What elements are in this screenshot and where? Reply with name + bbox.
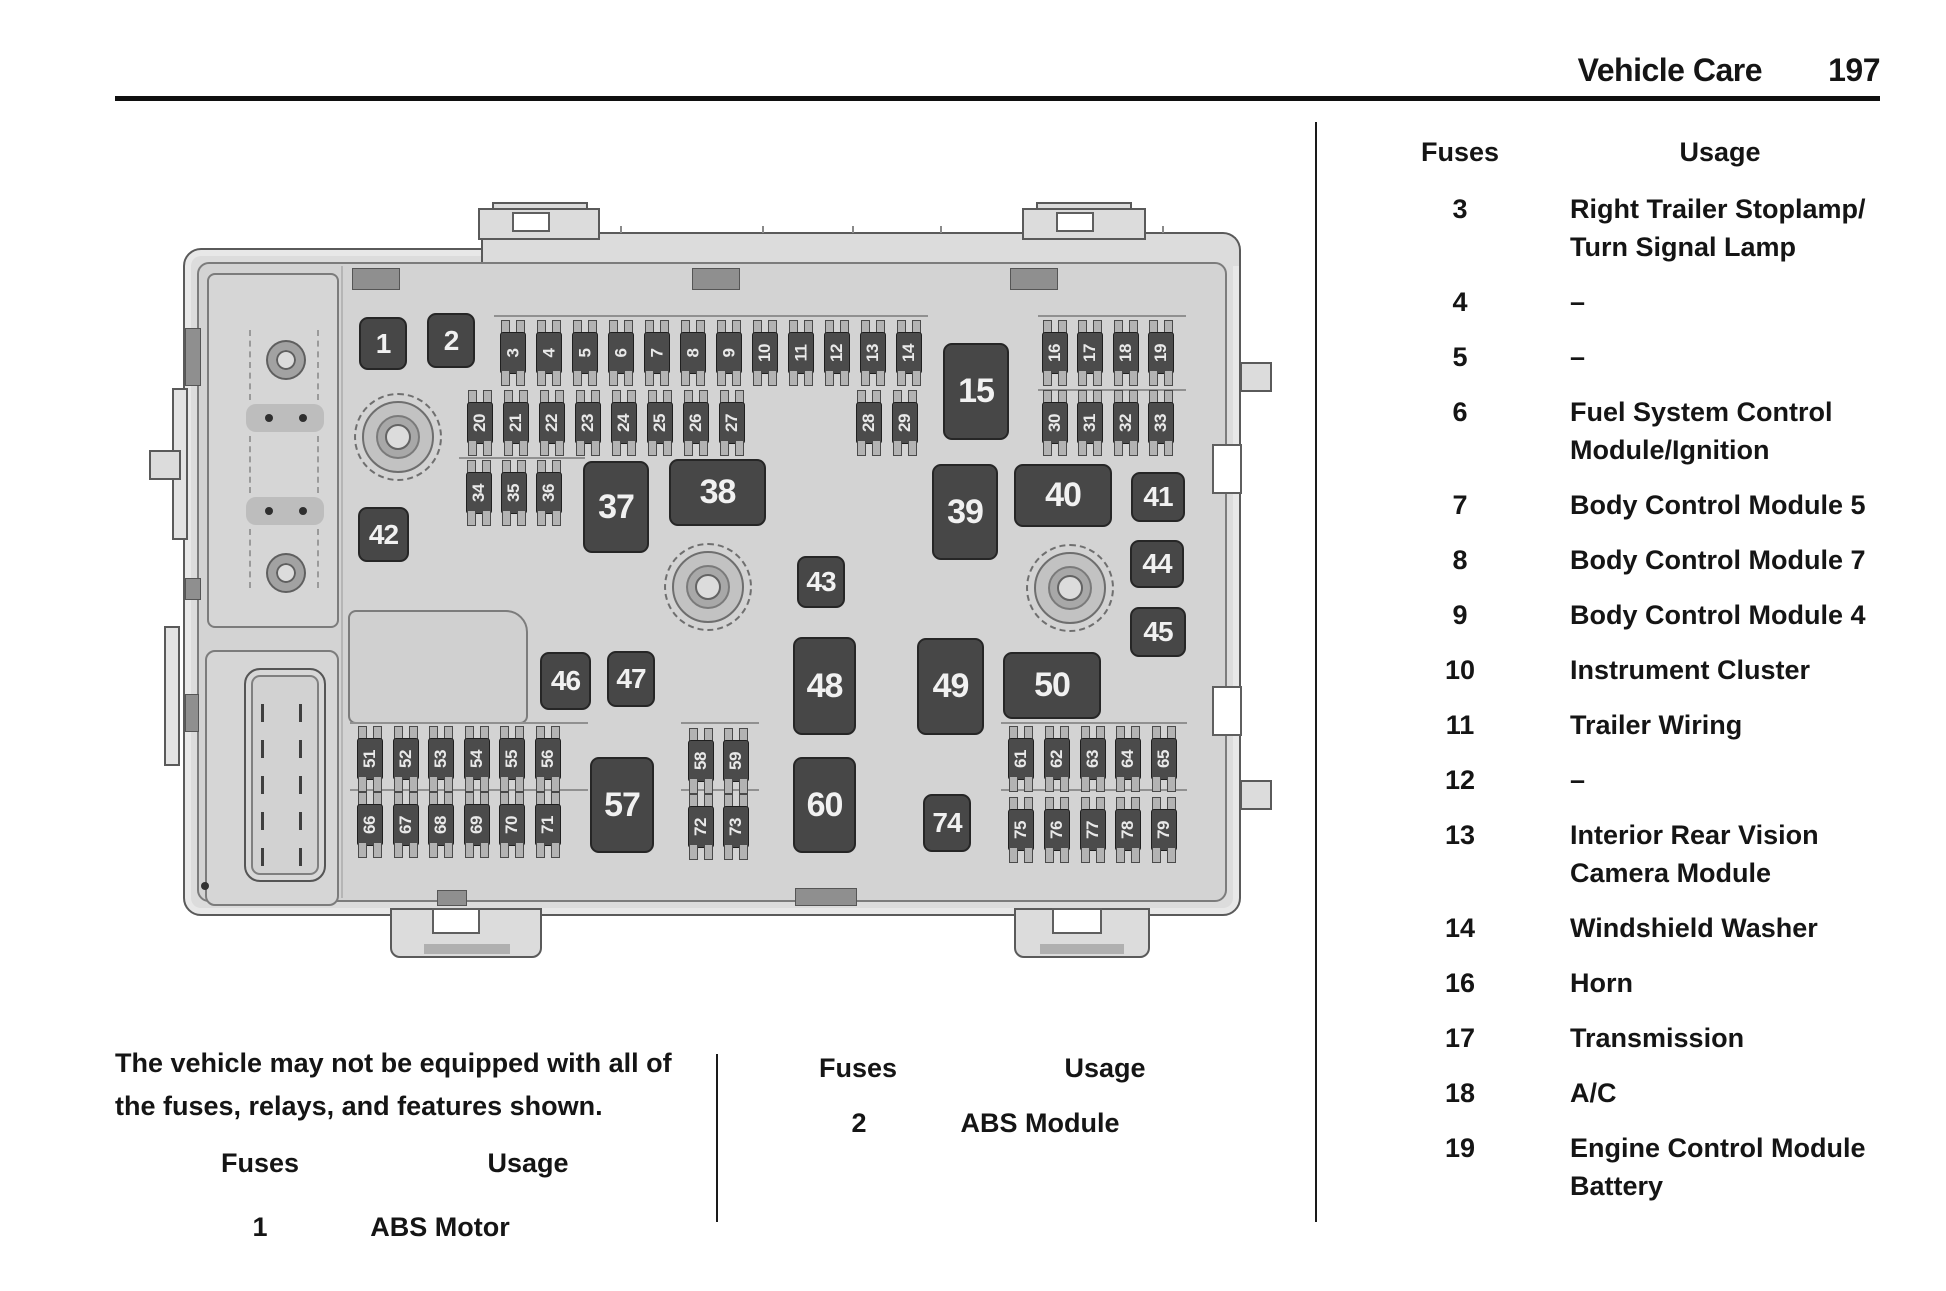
edge-tick	[852, 226, 854, 233]
relay-1: 1	[359, 317, 407, 370]
right-edge-notch-1	[1212, 444, 1242, 494]
connector-pin-mark	[299, 776, 302, 794]
edge-tick	[620, 226, 622, 233]
table-row: 13Interior Rear VisionCamera Module	[1395, 816, 1895, 892]
fuse-row-bracket	[459, 457, 585, 459]
fuse-33: 33	[1148, 390, 1174, 456]
fuse-usage: Instrument Cluster	[1525, 651, 1870, 689]
fuse-53: 53	[428, 726, 454, 792]
top-notch-tab-1	[352, 268, 400, 290]
fuse-usage: A/C	[1525, 1074, 1870, 1112]
top-notch-tab-3	[1010, 268, 1058, 290]
fuse-75: 75	[1008, 797, 1034, 863]
connector-dot	[299, 507, 307, 515]
fuse-row-bracket	[681, 722, 759, 724]
relay-46: 46	[540, 652, 591, 710]
usage-column-header: Usage	[487, 1148, 568, 1179]
bottom-tab-notch-right	[1052, 908, 1102, 934]
column-divider-bottom	[716, 1054, 718, 1222]
connector-pin-mark	[299, 740, 302, 758]
fuse-usage: ABS Motor	[370, 1212, 509, 1243]
fuse-61: 61	[1008, 726, 1034, 792]
relay-43: 43	[797, 556, 845, 608]
right-edge-notch-2	[1212, 686, 1242, 736]
connector-pin-mark	[261, 776, 264, 794]
panel-guide-line	[317, 436, 319, 493]
table-row: 12–	[1395, 761, 1895, 799]
connector-pin-mark	[261, 740, 264, 758]
fuse-72: 72	[688, 794, 714, 860]
connector-pin-mark	[299, 704, 302, 722]
relay-44: 44	[1130, 540, 1184, 588]
relay-42: 42	[358, 507, 409, 562]
fuse-14: 14	[896, 320, 922, 386]
fuse-7: 7	[644, 320, 670, 386]
fuse-13: 13	[860, 320, 886, 386]
fuse-usage: –	[1525, 338, 1870, 376]
bottom-tab-lip-right	[1040, 944, 1124, 954]
washer-bolt-icon	[354, 393, 442, 481]
table-row: 3Right Trailer Stoplamp/Turn Signal Lamp	[1395, 190, 1895, 266]
connector-pin-mark	[261, 848, 264, 866]
fuse-number: 3	[1395, 190, 1525, 266]
fuse-56: 56	[535, 726, 561, 792]
fuse-55: 55	[499, 726, 525, 792]
fuse-3: 3	[500, 320, 526, 386]
panel-separator	[341, 266, 343, 898]
fuse-usage: Body Control Module 7	[1525, 541, 1870, 579]
fuse-usage: Windshield Washer	[1525, 909, 1870, 947]
fuse-number: 8	[1395, 541, 1525, 579]
fuse-36: 36	[536, 460, 562, 526]
table-row: 18A/C	[1395, 1074, 1895, 1112]
table-row: 7Body Control Module 5	[1395, 486, 1895, 524]
fuses-column-header: Fuses	[221, 1148, 299, 1179]
fuse-29: 29	[892, 390, 918, 456]
connector-pin-mark	[299, 848, 302, 866]
big-connector	[244, 668, 326, 882]
relay-57: 57	[590, 757, 654, 853]
fuse-25: 25	[647, 390, 673, 456]
connector-dot	[265, 414, 273, 422]
fuse-number: 18	[1395, 1074, 1525, 1112]
table-row: 16Horn	[1395, 964, 1895, 1002]
fuse-26: 26	[683, 390, 709, 456]
relay-48: 48	[793, 637, 856, 735]
washer-bolt-icon	[1026, 544, 1114, 632]
relay-38: 38	[669, 459, 766, 526]
fuse-6: 6	[608, 320, 634, 386]
fuse-row-bracket	[350, 722, 588, 724]
table-row: 9Body Control Module 4	[1395, 596, 1895, 634]
usage-column-header: Usage	[1064, 1053, 1145, 1084]
fuse-row-bracket	[1038, 315, 1186, 317]
fuse-usage: Engine Control ModuleBattery	[1525, 1129, 1870, 1205]
fuse-20: 20	[467, 390, 493, 456]
left-dark-tab-1	[185, 328, 201, 386]
column-divider-right	[1315, 122, 1317, 1222]
fuse-row-bracket	[1001, 722, 1187, 724]
fuse-62: 62	[1044, 726, 1070, 792]
edge-tick	[940, 226, 942, 233]
relay-bay	[348, 610, 528, 724]
fuse-18: 18	[1113, 320, 1139, 386]
fuse-63: 63	[1080, 726, 1106, 792]
fuse-24: 24	[611, 390, 637, 456]
bolt-icon-upper	[268, 342, 304, 378]
fuse-67: 67	[393, 792, 419, 858]
edge-tick	[1162, 226, 1164, 233]
relay-47: 47	[607, 651, 655, 707]
usage-table-right: Fuses Usage 3Right Trailer Stoplamp/Turn…	[1395, 133, 1895, 1222]
fuse-usage: Interior Rear VisionCamera Module	[1525, 816, 1870, 892]
relay-41: 41	[1131, 472, 1185, 522]
left-dark-tab-2	[185, 578, 201, 600]
fuse-usage: Body Control Module 4	[1525, 596, 1870, 634]
top-tab-notch-left	[512, 212, 550, 232]
fuse-69: 69	[464, 792, 490, 858]
relay-37: 37	[583, 461, 649, 553]
relay-2: 2	[427, 313, 475, 368]
connector-pin-mark	[261, 704, 264, 722]
table-row: 10Instrument Cluster	[1395, 651, 1895, 689]
fuse-usage: Body Control Module 5	[1525, 486, 1870, 524]
fuse-78: 78	[1115, 797, 1141, 863]
relay-50: 50	[1003, 652, 1101, 719]
fuse-number: 1	[252, 1212, 267, 1243]
fuse-5: 5	[572, 320, 598, 386]
usage-column-header: Usage	[1525, 133, 1870, 171]
fuse-65: 65	[1151, 726, 1177, 792]
left-latch-tab	[149, 450, 181, 480]
fuse-31: 31	[1077, 390, 1103, 456]
edge-tick	[762, 226, 764, 233]
fuse-23: 23	[575, 390, 601, 456]
fuse-number: 11	[1395, 706, 1525, 744]
top-notch-tab-2	[692, 268, 740, 290]
fuse-number: 17	[1395, 1019, 1525, 1057]
top-tab-notch-right	[1056, 212, 1094, 232]
fuse-70: 70	[499, 792, 525, 858]
fuse-32: 32	[1113, 390, 1139, 456]
left-dark-tab-3	[185, 694, 199, 732]
fuse-73: 73	[723, 794, 749, 860]
panel-dot	[201, 882, 209, 890]
bottom-tab-lip-left	[424, 944, 510, 954]
bottom-tab-notch-left	[432, 908, 480, 934]
page-title: Vehicle Care	[1578, 52, 1762, 89]
panel-guide-line	[317, 529, 319, 588]
fuse-54: 54	[464, 726, 490, 792]
washer-bolt-icon	[664, 543, 752, 631]
relay-60: 60	[793, 757, 856, 853]
fuse-64: 64	[1115, 726, 1141, 792]
fuse-usage: Right Trailer Stoplamp/Turn Signal Lamp	[1525, 190, 1870, 266]
relay-49: 49	[917, 638, 984, 735]
bolt-icon-lower	[268, 555, 304, 591]
fuse-number: 16	[1395, 964, 1525, 1002]
note-line-1: The vehicle may not be equipped with all…	[115, 1042, 672, 1085]
fuse-number: 6	[1395, 393, 1525, 469]
table-row: 17Transmission	[1395, 1019, 1895, 1057]
panel-guide-line	[249, 436, 251, 493]
fuse-58: 58	[688, 728, 714, 794]
relay-39: 39	[932, 464, 998, 560]
connector-pin-mark	[261, 812, 264, 830]
fuse-usage: Trailer Wiring	[1525, 706, 1870, 744]
fuse-52: 52	[393, 726, 419, 792]
fuses-column-header: Fuses	[1395, 133, 1525, 171]
bottom-notch-tab-1	[437, 890, 467, 906]
fuse-number: 5	[1395, 338, 1525, 376]
left-rail-lower	[164, 626, 180, 766]
table-row: 19Engine Control ModuleBattery	[1395, 1129, 1895, 1205]
fuse-usage: ABS Module	[961, 1108, 1120, 1139]
table-row: 14Windshield Washer	[1395, 909, 1895, 947]
table-row: 4–	[1395, 283, 1895, 321]
connector-dot	[299, 414, 307, 422]
fuse-59: 59	[723, 728, 749, 794]
fuse-number: 14	[1395, 909, 1525, 947]
right-side-tab-2	[1240, 780, 1272, 810]
equipment-note: The vehicle may not be equipped with all…	[115, 1042, 672, 1128]
fuse-17: 17	[1077, 320, 1103, 386]
fuse-number: 19	[1395, 1129, 1525, 1205]
table-row: 11Trailer Wiring	[1395, 706, 1895, 744]
fuse-21: 21	[503, 390, 529, 456]
connector-block-lower	[246, 497, 324, 525]
note-line-2: the fuses, relays, and features shown.	[115, 1085, 672, 1128]
fuse-number: 13	[1395, 816, 1525, 892]
fuse-number: 10	[1395, 651, 1525, 689]
fuse-usage: –	[1525, 283, 1870, 321]
table-row: 6Fuel System ControlModule/Ignition	[1395, 393, 1895, 469]
manual-page: Vehicle Care 197	[0, 0, 1946, 1291]
fuse-12: 12	[824, 320, 850, 386]
fuse-row-bracket	[494, 315, 928, 317]
fuse-number: 2	[851, 1108, 866, 1139]
fuse-usage: Horn	[1525, 964, 1870, 1002]
fuse-66: 66	[357, 792, 383, 858]
fuse-19: 19	[1148, 320, 1174, 386]
table-row: 8Body Control Module 7	[1395, 541, 1895, 579]
fuse-71: 71	[535, 792, 561, 858]
fuse-number: 12	[1395, 761, 1525, 799]
relay-40: 40	[1014, 464, 1112, 527]
fuse-number: 9	[1395, 596, 1525, 634]
relay-74: 74	[923, 794, 971, 852]
fuse-10: 10	[752, 320, 778, 386]
fuse-number: 7	[1395, 486, 1525, 524]
panel-guide-line	[317, 330, 319, 400]
connector-block-upper	[246, 404, 324, 432]
fuse-16: 16	[1042, 320, 1068, 386]
right-side-tab-1	[1240, 362, 1272, 392]
fuse-9: 9	[716, 320, 742, 386]
relay-45: 45	[1130, 607, 1186, 657]
fuse-76: 76	[1044, 797, 1070, 863]
fuse-68: 68	[428, 792, 454, 858]
fuse-35: 35	[501, 460, 527, 526]
fuse-51: 51	[357, 726, 383, 792]
connector-dot	[265, 507, 273, 515]
fuse-usage: Fuel System ControlModule/Ignition	[1525, 393, 1870, 469]
table-header: Fuses Usage	[1395, 133, 1895, 171]
fuse-28: 28	[856, 390, 882, 456]
fuse-usage: Transmission	[1525, 1019, 1870, 1057]
panel-guide-line	[249, 529, 251, 588]
fuse-77: 77	[1080, 797, 1106, 863]
fuse-27: 27	[719, 390, 745, 456]
fuse-11: 11	[788, 320, 814, 386]
fuse-34: 34	[466, 460, 492, 526]
fuses-column-header: Fuses	[819, 1053, 897, 1084]
bottom-notch-tab-2	[795, 888, 857, 906]
relay-15: 15	[943, 343, 1009, 440]
connector-pin-mark	[299, 812, 302, 830]
fuse-79: 79	[1151, 797, 1177, 863]
fuse-22: 22	[539, 390, 565, 456]
fuse-30: 30	[1042, 390, 1068, 456]
table-row: 5–	[1395, 338, 1895, 376]
page-number: 197	[1828, 52, 1880, 89]
fuse-4: 4	[536, 320, 562, 386]
fuse-8: 8	[680, 320, 706, 386]
panel-guide-line	[249, 330, 251, 400]
header-rule	[115, 96, 1880, 101]
fuse-usage: –	[1525, 761, 1870, 799]
fuse-number: 4	[1395, 283, 1525, 321]
